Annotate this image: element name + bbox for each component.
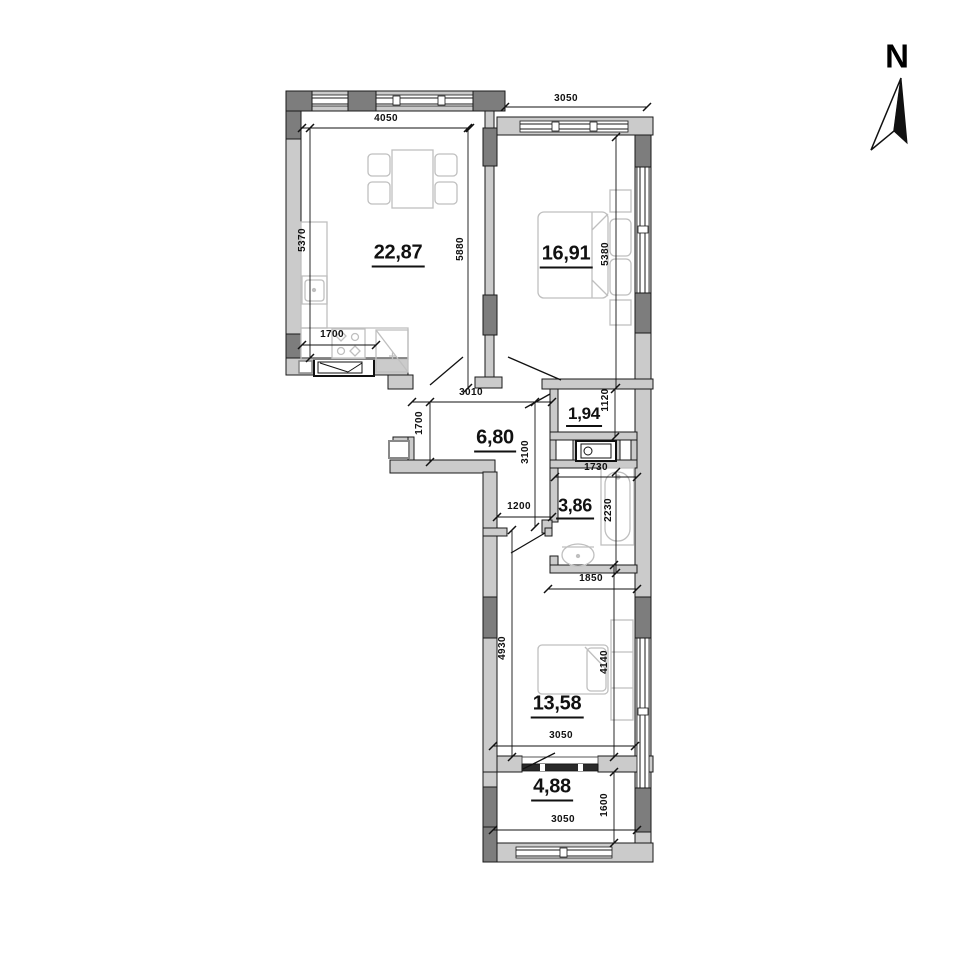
window-top-bedroom1	[520, 121, 628, 132]
room-label-bedroom1: 16,91	[540, 244, 593, 269]
single-bed-icon	[538, 645, 608, 694]
dim-bath-top: 1730	[584, 463, 608, 473]
kitchen-sink	[302, 276, 327, 304]
kitchen-shaft	[299, 361, 312, 373]
bath-sink-icon	[562, 544, 594, 566]
dim-bedroom2-left: 4930	[498, 636, 508, 660]
room-label-living: 22,87	[372, 243, 425, 268]
door-living	[430, 357, 463, 385]
dim-living-right: 5880	[456, 237, 466, 261]
dim-balcony-right: 1600	[600, 793, 610, 817]
dining-table	[368, 150, 457, 208]
dim-bedroom2-right: 4140	[600, 650, 610, 674]
floorplan-drawing	[0, 0, 960, 960]
dim-hall-lower: 1200	[507, 502, 531, 512]
dim-closet-right: 1120	[601, 388, 611, 411]
dimension-lines	[302, 107, 647, 843]
door-bedroom2	[511, 533, 545, 553]
floorplan-page: N 22,87 16,91 6,80 1,94 3,86 13,58 4,88 …	[0, 0, 960, 960]
dim-kitchen-front: 1700	[320, 330, 344, 340]
room-label-balcony: 4,88	[531, 777, 573, 802]
dim-balcony-bottom: 3050	[551, 815, 575, 825]
dim-bath-bottom: 1850	[579, 574, 603, 584]
dim-living-top: 4050	[374, 114, 398, 124]
room-label-closet: 1,94	[566, 405, 602, 427]
entry-shaft	[389, 441, 409, 458]
dim-living-left: 5370	[298, 228, 308, 252]
door-bedroom1	[508, 357, 561, 380]
dim-bedroom1-right: 5380	[601, 242, 611, 266]
north-label: N	[885, 40, 909, 73]
balcony-window-band	[522, 764, 598, 771]
dim-hall-mid: 3100	[521, 440, 531, 464]
dim-bedroom1-top: 3050	[554, 94, 578, 104]
dim-bath-right: 2230	[604, 498, 614, 522]
door-closet	[525, 394, 550, 408]
washing-machine-icon	[576, 441, 616, 461]
north-arrow-icon	[871, 78, 907, 150]
windows	[312, 95, 649, 858]
balcony-door-window-sill	[522, 757, 598, 764]
dim-hall-left: 1700	[415, 411, 425, 435]
dimension-ticks	[298, 103, 651, 847]
dim-hall-top: 3010	[459, 388, 483, 398]
room-label-bedroom2: 13,58	[531, 694, 584, 719]
room-label-bathroom: 3,86	[556, 497, 594, 520]
dim-bedroom2-bottom: 3050	[549, 731, 573, 741]
room-label-hall: 6,80	[474, 428, 516, 453]
